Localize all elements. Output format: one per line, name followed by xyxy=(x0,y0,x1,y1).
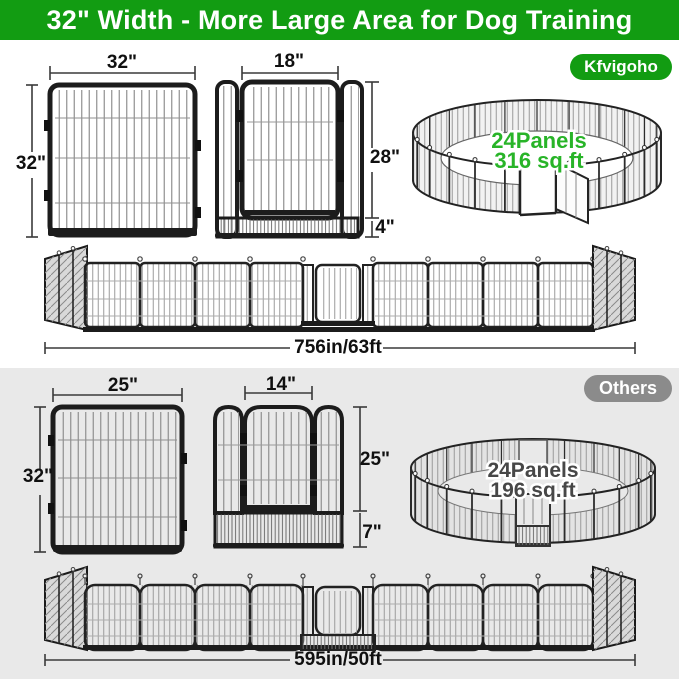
row-door xyxy=(301,587,375,650)
panel-width-label: 25" xyxy=(108,376,138,396)
row-door xyxy=(301,265,375,326)
gate-width-label: 18" xyxy=(274,52,304,72)
brand-section: Kfvigoho 32" 32" xyxy=(0,40,679,368)
gate-panel xyxy=(215,82,362,238)
circular-pen-diagram-others: 24Panels 196 sq.ft xyxy=(402,428,668,553)
panel-height-label: 32" xyxy=(16,154,46,174)
page-title: 32" Width - More Large Area for Dog Trai… xyxy=(0,0,679,40)
fence-panel xyxy=(48,407,187,552)
panel-diagram-32in xyxy=(18,52,208,242)
header-banner: 32" Width - More Large Area for Dog Trai… xyxy=(0,0,679,40)
panel-height-label: 32" xyxy=(23,467,53,487)
gate-door-height-label: 28" xyxy=(370,148,400,168)
row-left-corner xyxy=(45,246,87,330)
pen-door xyxy=(516,494,550,550)
row-length-label: 595in/50ft xyxy=(294,650,382,670)
row-length-label: 756in/63ft xyxy=(294,338,382,358)
row-right-corner xyxy=(593,567,635,650)
gate-door-height-label: 25" xyxy=(360,450,390,470)
fence-panel xyxy=(44,85,201,236)
gate-bottom-height-label: 4" xyxy=(375,218,395,238)
gate-panel xyxy=(213,407,344,548)
others-badge: Others xyxy=(584,375,672,402)
gate-bottom-height-label: 7" xyxy=(362,523,382,543)
circular-pen-diagram-brand: 24Panels 316 sq.ft xyxy=(400,85,678,240)
gate-width-label: 14" xyxy=(266,375,296,395)
product-comparison-image: 32" Width - More Large Area for Dog Trai… xyxy=(0,0,679,679)
row-right-corner xyxy=(593,246,635,330)
row-connector-pins xyxy=(83,257,595,261)
pen-area: 196 sq.ft xyxy=(490,479,575,502)
row-left-corner xyxy=(45,567,87,650)
panel-width-label: 32" xyxy=(107,53,137,73)
brand-badge: Kfvigoho xyxy=(570,54,672,80)
pen-area: 316 sq.ft xyxy=(494,148,584,173)
others-section: Others 25" 32" xyxy=(0,368,679,679)
